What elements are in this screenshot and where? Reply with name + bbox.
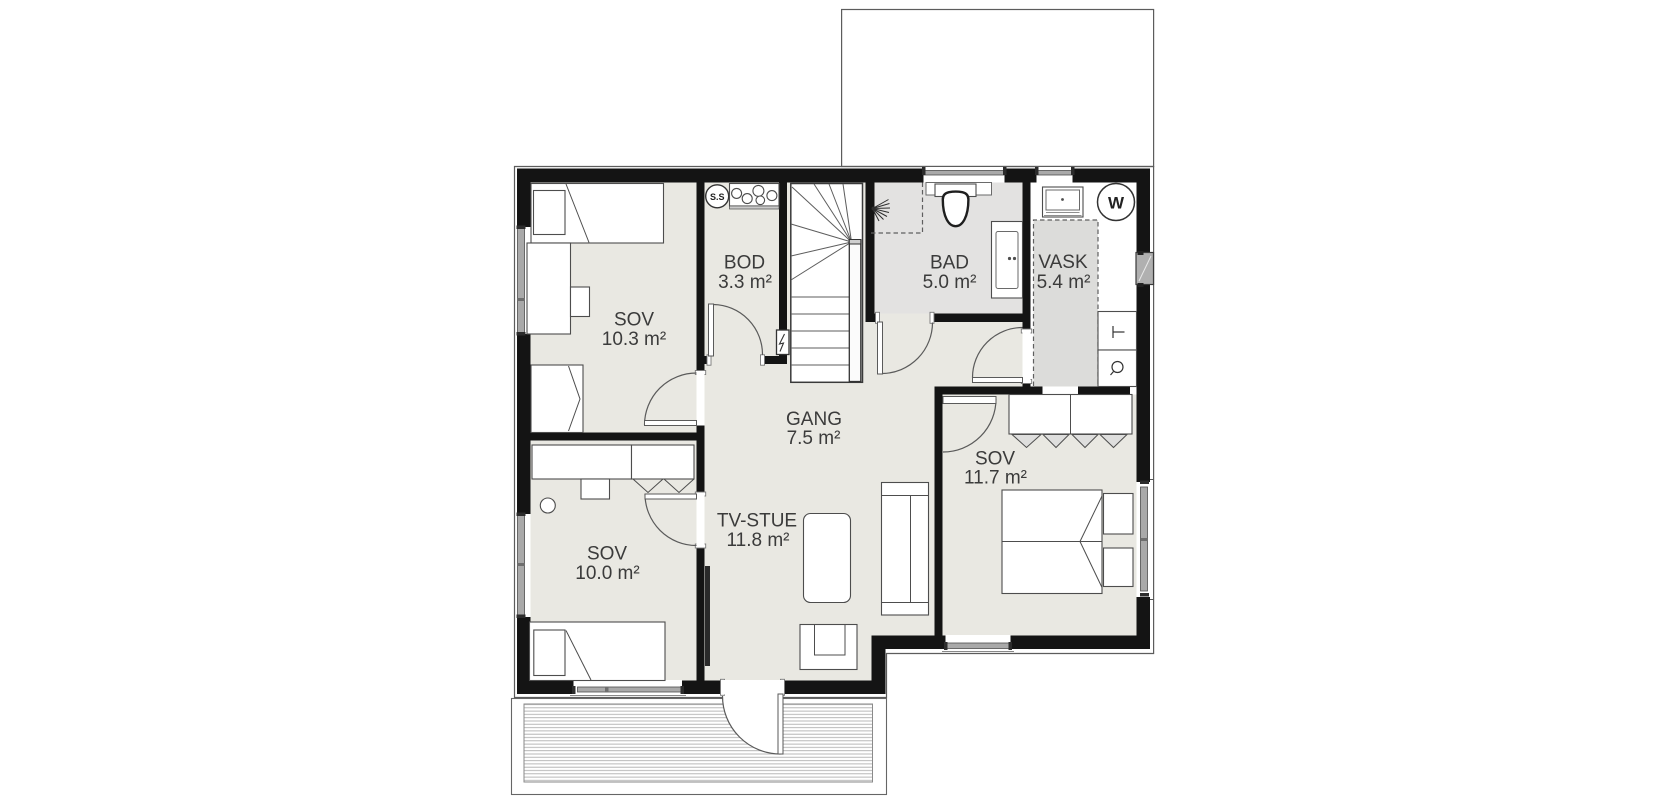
svg-text:10.0 m²: 10.0 m² (575, 563, 639, 584)
svg-text:5.4 m²: 5.4 m² (1037, 272, 1091, 293)
svg-text:11.8 m²: 11.8 m² (726, 530, 789, 551)
svg-text:SOV: SOV (587, 544, 627, 565)
svg-text:BAD: BAD (930, 253, 969, 274)
svg-text:S.S: S.S (710, 192, 725, 202)
svg-text:11.7 m²: 11.7 m² (964, 467, 1027, 488)
svg-text:SOV: SOV (614, 310, 654, 331)
svg-text:TV-STUE: TV-STUE (717, 511, 797, 532)
svg-text:VASK: VASK (1038, 252, 1088, 273)
svg-text:10.3 m²: 10.3 m² (602, 329, 666, 350)
svg-text:BOD: BOD (724, 253, 765, 274)
svg-text:3.3 m²: 3.3 m² (718, 272, 772, 293)
svg-text:W: W (1108, 194, 1125, 213)
svg-text:GANG: GANG (786, 409, 842, 430)
svg-text:5.0 m²: 5.0 m² (923, 272, 977, 293)
svg-text:7.5 m²: 7.5 m² (787, 428, 841, 449)
